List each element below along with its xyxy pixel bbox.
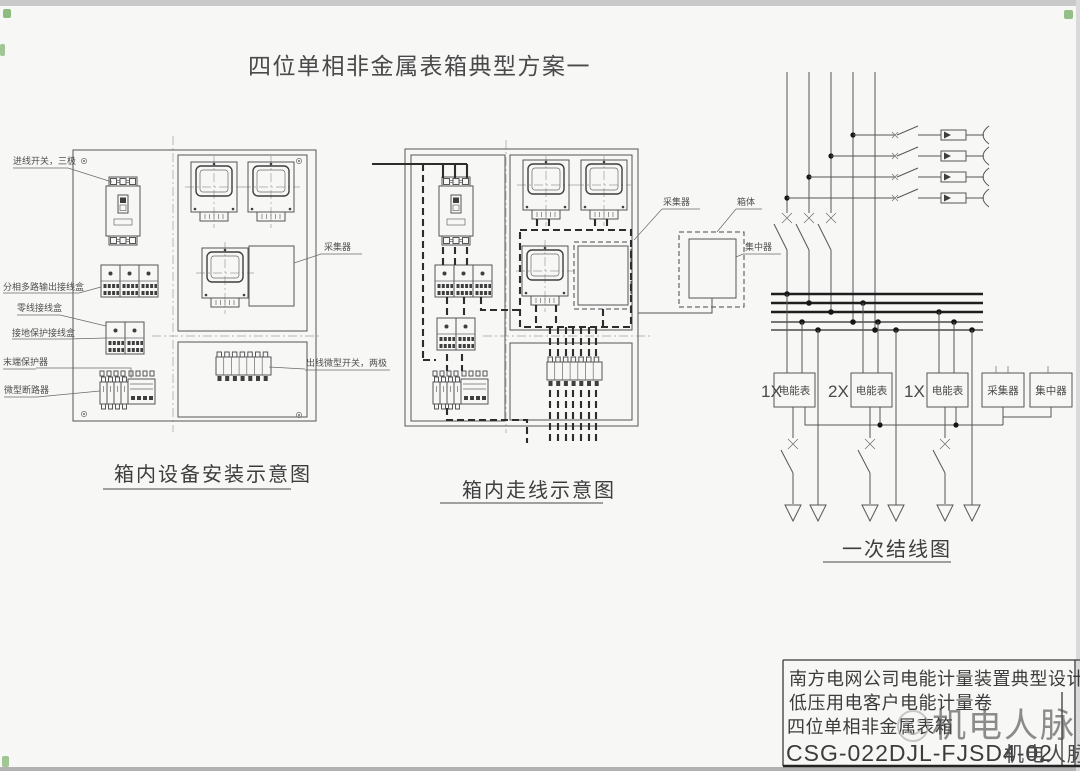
rs485-link [805,407,1051,428]
scanned-drawing-page: 四位单相非金属表箱典型方案一 进线开关，三极 分相多路输出接线盒 [0,0,1080,771]
label-collector-right: 采集器 [663,196,690,207]
meter-symbol [196,242,254,314]
label-ground-box: 接地保护接线盒 [12,327,75,338]
label-mini-breaker: 微型断路器 [4,384,49,395]
cad-drawing: 四位单相非金属表箱典型方案一 进线开关，三极 分相多路输出接线盒 [0,0,1080,771]
label-neutral-box: 零线接线盒 [17,302,62,313]
meter-box-label: 电能表 [856,384,888,397]
branch-feeder [828,147,989,165]
branch-feeders [784,126,989,207]
label-concentrator: 集中器 [745,241,772,252]
concentrator-box-symbol [689,239,736,298]
collector-dashed-outline [574,242,631,309]
label-outgoing-switch: 出线微型开关，两极 [306,357,387,368]
neutral-ground-junction-box [106,322,144,354]
outgoing-switch-strip [547,357,602,386]
meter-symbol [575,154,633,226]
scan-mark-green [1064,10,1073,19]
device-row: 1X 电能表 2X 电能表 1X 电能表 采集器 集中器 [761,366,1072,407]
watermark-text: 机电人脉 [932,707,1076,745]
label-end-protector: 末端保护器 [3,356,48,367]
label-multi-output-box: 分相多路输出接线盒 [3,281,84,292]
branch-feeder [850,126,989,144]
label-incoming-switch: 进线开关，三极 [13,155,76,166]
meter-symbol [185,156,243,228]
mcb-row-symbol [433,371,488,409]
busbars [771,291,983,333]
meter-box-label: 电能表 [932,384,964,397]
title-block-line1: 南方电网公司电能计量装置典型设计 [789,669,1080,689]
branch-feeder [784,189,989,207]
collector-box-symbol [249,246,294,306]
label-box-body: 箱体 [737,196,755,207]
branch-feeder [806,168,989,186]
incoming-breaker-symbol [106,177,140,245]
meter-qty: 1X [904,382,925,401]
scan-mark-green [0,44,5,56]
meter-qty: 2X [828,382,849,401]
wiring-diagram-caption: 箱内走线示意图 [462,479,616,502]
install-diagram-caption: 箱内设备安装示意图 [114,463,312,486]
neutral-ground-junction-box [437,318,475,350]
install-diagram: 进线开关，三极 分相多路输出接线盒 零线接线盒 接地保护接线盒 末端保护器 微型… [3,136,390,489]
oneline-diagram: 采集器 箱体 集中器 1X 电能表 2X 电能表 1 [634,72,1072,562]
collector-box-label: 采集器 [987,384,1019,397]
meter-box-label: 电能表 [779,384,811,397]
meter-symbol [516,240,574,312]
meter-symbol [242,156,300,228]
collector-box-symbol [578,246,628,305]
oneline-diagram-caption: 一次结线图 [842,538,952,561]
wiring-diagram: 箱内走线示意图 [372,140,652,503]
label-collector-left: 采集器 [324,241,351,252]
concentrator-box-label: 集中器 [1035,384,1067,397]
multi-output-junction-box [101,265,158,297]
concentrator-detail: 采集器 箱体 集中器 [634,196,781,313]
meter-symbol [517,154,575,226]
scan-mark-green [2,756,9,767]
corner-brand-text: 机电人脉 [1004,743,1080,766]
incoming-breaker-symbol [439,177,473,245]
multi-output-junction-box [435,265,492,297]
scan-mark-green [3,9,11,18]
mcb-row-symbol [100,371,155,409]
outgoing-switch-strip [216,352,271,381]
sheet-title: 四位单相非金属表箱典型方案一 [248,53,591,79]
